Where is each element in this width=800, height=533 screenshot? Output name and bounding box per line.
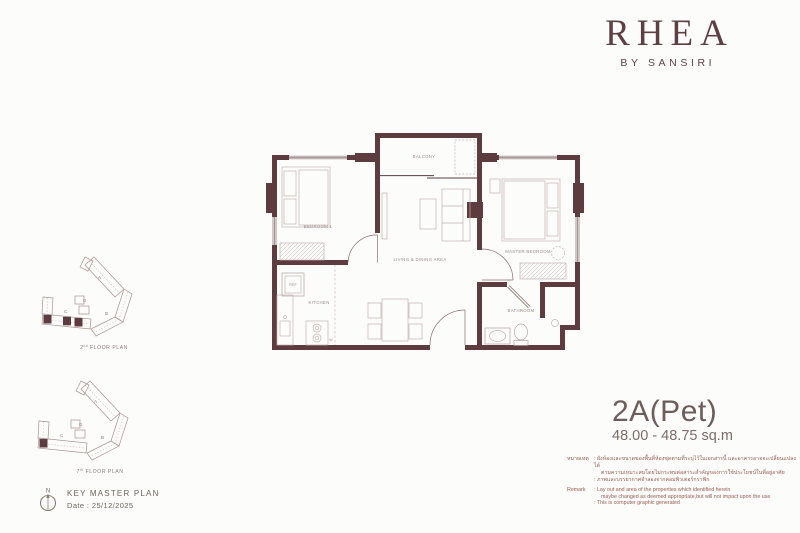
unit-floor-plan: BEDROOM 1 BALCONY MASTER BEDROOM LIVING … [262, 127, 592, 357]
washer-label: W [329, 338, 333, 342]
key-master-plan: N KEY MASTER PLAN Date : 25/12/2025 [36, 486, 160, 514]
remark-thai-line: : ผังห้องและขนาดของพื้นที่ห้องชุดตามที่ร… [594, 456, 799, 470]
dining-furniture [368, 299, 422, 341]
remark-english-line: : This is computer graphic generated [594, 500, 799, 507]
brand-logo: RHEA BY SANSIRI [566, 14, 766, 69]
brand-subtitle: BY SANSIRI [566, 57, 766, 69]
balcony-label: BALCONY [413, 154, 436, 159]
ref-label: REF [289, 283, 297, 287]
bathroom-fixtures [485, 320, 559, 346]
balcony-sliding-door [380, 174, 477, 180]
brochure-page: RHEA BY SANSIRI [0, 0, 800, 533]
remark-thai: หมายเหตุ : ผังห้องและขนาดของพื้นที่ห้องช… [567, 456, 799, 484]
floor-plan-label-7th: 7thFLOOR PLAN [77, 468, 124, 475]
key-plan-7th-floor: 7thFLOOR PLAN [24, 376, 149, 481]
kitchen-furniture [277, 265, 335, 345]
doors [348, 235, 530, 345]
bedroom1-label: BEDROOM 1 [304, 224, 333, 229]
kitchen-label: KITCHEN [309, 300, 330, 305]
master-bedroom-furniture [490, 179, 566, 279]
remark-thai-line: ตามความเหมาะสมโดยไม่กระทบต่อสาระสำคัญของ… [594, 470, 799, 477]
walls [266, 133, 584, 350]
remark-thai-line: : ภาพและบรรยากาศจำลองจากคอมพิวเตอร์กราฟิ… [594, 477, 799, 484]
north-compass-icon: N [36, 486, 60, 514]
bathroom-label: BATHROOM [508, 308, 535, 313]
key-plan-2nd-floor: A B C D 2ndFLOOR PLAN [28, 252, 153, 357]
remark-english-line: : Lay out and area of the properties whi… [594, 487, 799, 494]
remark-block: หมายเหตุ : ผังห้องและขนาดของพื้นที่ห้องช… [567, 456, 799, 507]
living-dining-label: LIVING & DINING AREA [393, 257, 446, 262]
balcony-ac-unit [455, 140, 475, 174]
brand-name: RHEA [566, 14, 766, 54]
master-bedroom-label: MASTER BEDROOM [505, 249, 551, 254]
bedroom1-furniture [280, 167, 330, 260]
floor-plan-label-2nd: 2ndFLOOR PLAN [80, 344, 128, 351]
remark-thai-label: หมายเหตุ [567, 456, 594, 484]
key-master-plan-title: KEY MASTER PLAN [67, 489, 160, 498]
remark-english: Remark : Lay out and area of the propert… [567, 487, 799, 508]
unit-type: 2A(Pet) [612, 396, 733, 428]
key-master-plan-date: Date : 25/12/2025 [67, 501, 160, 510]
remark-english-label: Remark [567, 487, 594, 508]
unit-info: 2A(Pet) 48.00 - 48.75 sq.m [612, 396, 733, 445]
remark-english-line: maybe changed as deemed appropriate,but … [594, 494, 799, 501]
living-furniture [382, 189, 470, 241]
unit-area: 48.00 - 48.75 sq.m [612, 428, 733, 445]
highlighted-unit-7th-floor [40, 439, 48, 448]
